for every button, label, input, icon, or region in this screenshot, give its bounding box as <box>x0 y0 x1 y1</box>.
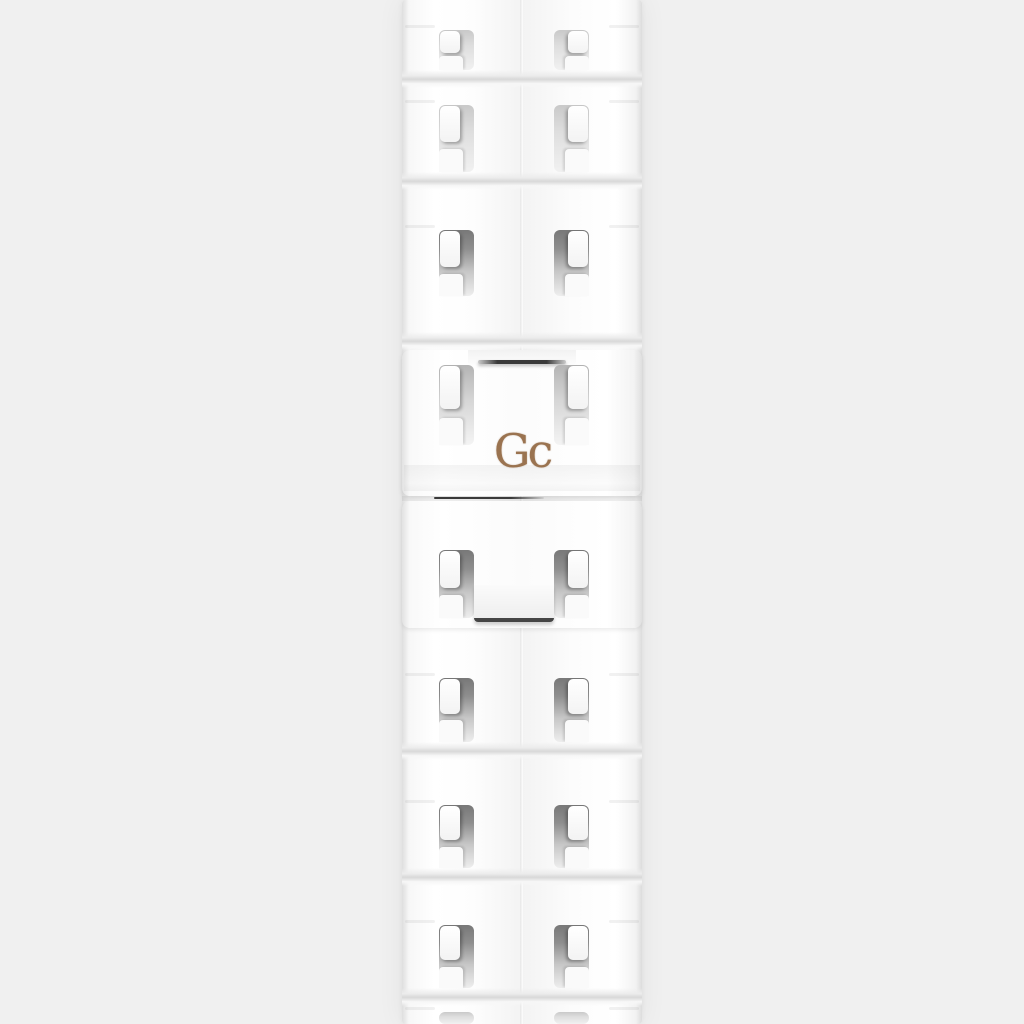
clasp-lower-plate <box>402 501 642 628</box>
clasp-slot-right <box>554 550 589 618</box>
link-slot-right <box>554 1012 589 1024</box>
link-pin-foot <box>565 847 589 868</box>
link-slot-row <box>402 678 642 742</box>
link-slot-right <box>554 925 589 988</box>
clasp-pin-tab <box>440 366 460 409</box>
link-slot-left <box>439 678 474 742</box>
link-pin-tab <box>568 926 588 960</box>
link-pin-foot <box>565 720 589 742</box>
product-photo-canvas: Gc <box>0 0 1024 1024</box>
link-slot-row <box>402 1012 642 1024</box>
link-pin-tab <box>440 231 460 267</box>
link-slot-row <box>402 230 642 296</box>
link-slot-row <box>402 925 642 988</box>
clasp-pin-foot <box>565 595 589 618</box>
link-seam <box>402 988 642 1006</box>
link-slot-left <box>439 105 474 172</box>
link-pin-foot <box>565 149 589 172</box>
link-slot-right <box>554 678 589 742</box>
link-pin-tab <box>568 806 588 840</box>
link-seam <box>402 172 642 190</box>
clasp-pin-foot <box>439 595 463 618</box>
link-slot-left <box>439 925 474 988</box>
link-pin-tab <box>568 679 588 714</box>
link-pin-foot <box>565 967 589 988</box>
link-seam <box>402 70 642 88</box>
clasp-release-tab <box>468 350 576 365</box>
link-pin-foot <box>565 274 589 296</box>
clasp-tab-shadow-line <box>478 360 566 364</box>
link-slot-row <box>402 30 642 70</box>
watch-bracelet: Gc <box>402 0 642 1024</box>
link-seam <box>402 868 642 886</box>
link-pin-foot <box>439 967 463 988</box>
link-pin-foot <box>439 149 463 172</box>
gc-brand-logo: Gc <box>402 428 642 474</box>
link-slot-right <box>554 105 589 172</box>
link-pin-tab <box>440 106 460 142</box>
link-seam <box>402 332 642 350</box>
clasp-pin-tab <box>440 551 460 588</box>
link-pin-tab <box>568 231 588 267</box>
link-pin-tab <box>568 31 588 53</box>
link-slot-right <box>554 805 589 868</box>
clasp-pin-tab <box>568 551 588 588</box>
link-slot-left <box>439 30 474 70</box>
link-pin-foot <box>439 56 463 70</box>
link-pin-tab <box>440 926 460 960</box>
link-pin-tab <box>440 679 460 714</box>
link-slot-left <box>439 230 474 296</box>
clasp-pin-tab <box>568 366 588 409</box>
clasp-recess <box>474 585 554 622</box>
link-pin-tab <box>440 31 460 53</box>
link-slot-left <box>439 805 474 868</box>
clasp-gap-shadow <box>434 497 544 499</box>
link-slot-left <box>439 1012 474 1024</box>
clasp-upper-plate: Gc <box>402 350 642 496</box>
link-slot-right <box>554 30 589 70</box>
link-pin-foot <box>439 274 463 296</box>
link-slot-right <box>554 230 589 296</box>
link-pin-tab <box>440 806 460 840</box>
link-pin-foot <box>439 720 463 742</box>
link-pin-foot <box>439 847 463 868</box>
link-pin-foot <box>565 56 589 70</box>
link-slot-row <box>402 105 642 172</box>
link-seam <box>402 742 642 760</box>
link-pin-tab <box>568 106 588 142</box>
clasp-slot-left <box>439 550 474 618</box>
link-slot-row <box>402 805 642 868</box>
